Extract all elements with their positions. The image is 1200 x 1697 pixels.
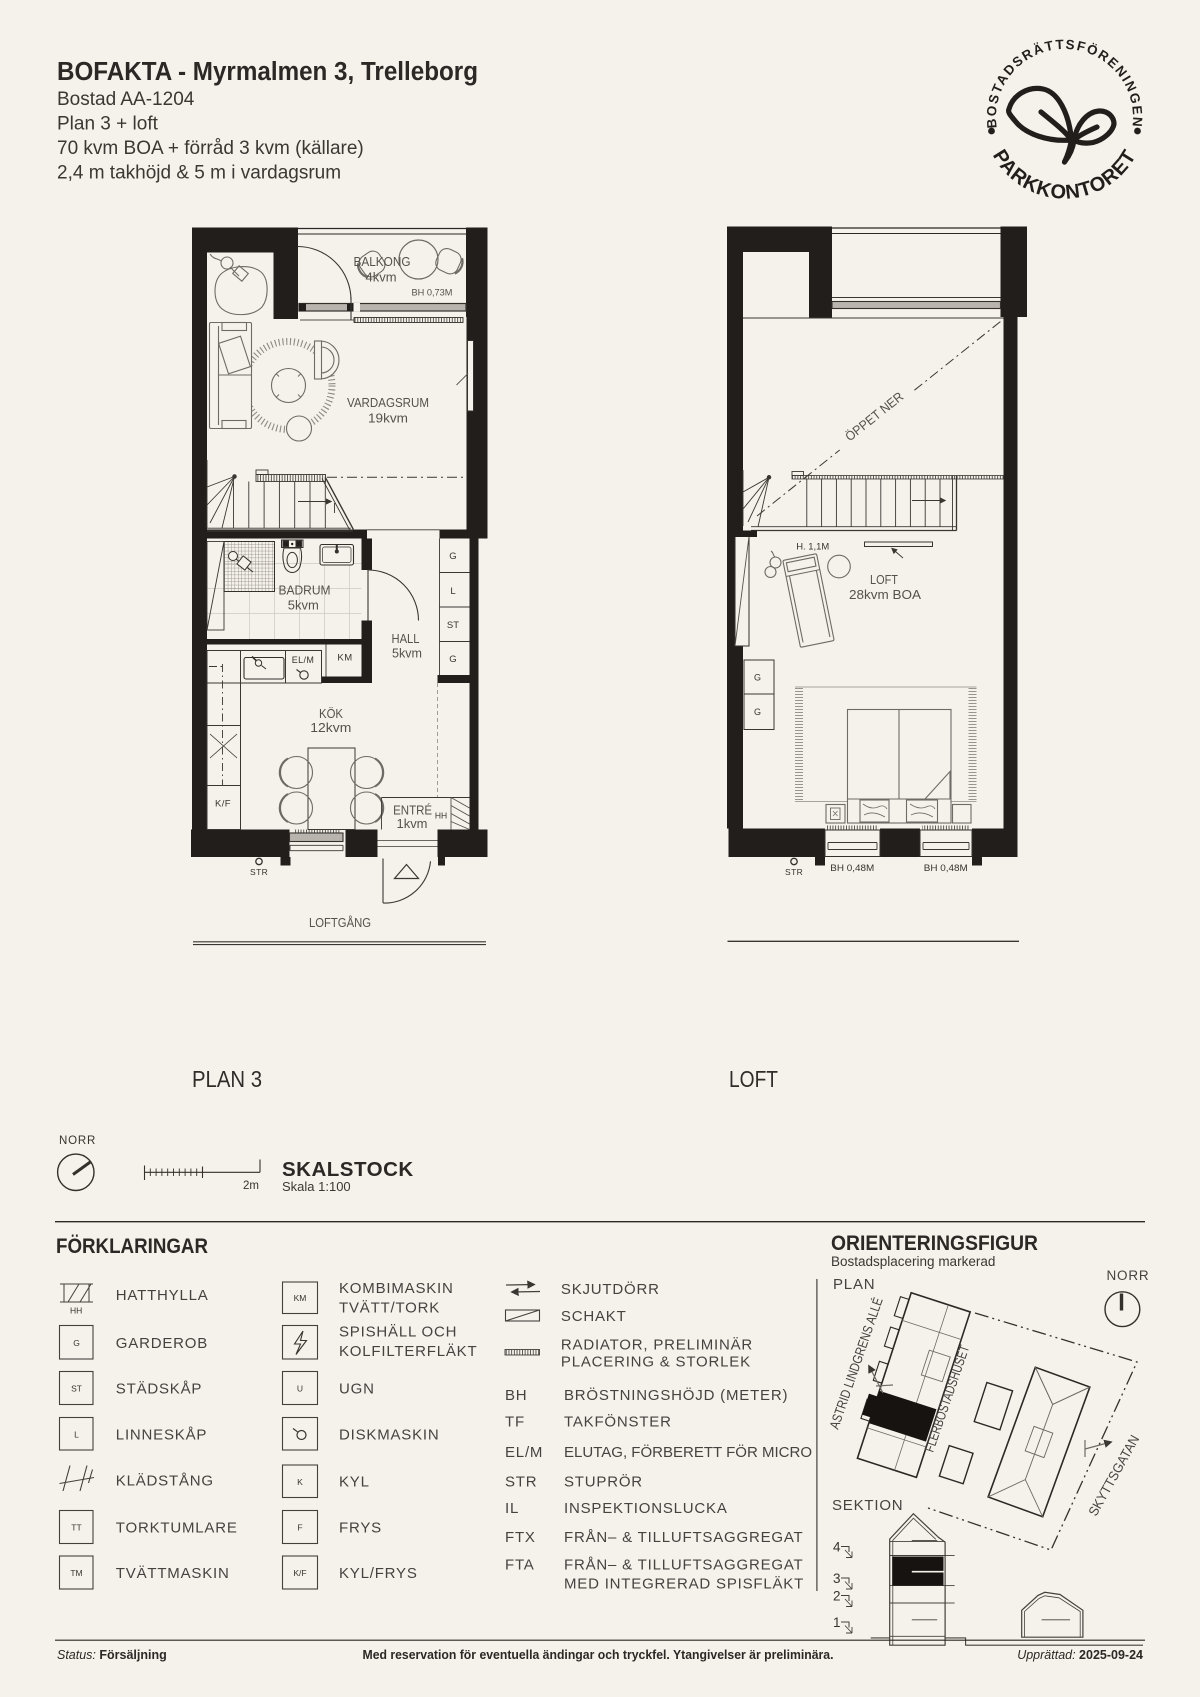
svg-text:KYL: KYL [339,1474,370,1491]
svg-text:TM: TM [70,1568,82,1578]
svg-text:NORR: NORR [1107,1268,1150,1283]
svg-text:BH 0,48M: BH 0,48M [830,863,874,873]
svg-text:SCHAKT: SCHAKT [561,1308,627,1325]
svg-text:2m: 2m [243,1180,259,1192]
svg-text:FRYS: FRYS [339,1520,382,1537]
svg-text:ÖPPET NER: ÖPPET NER [842,389,906,444]
svg-text:4kvm: 4kvm [366,270,397,285]
svg-text:5kvm: 5kvm [392,646,422,661]
svg-text:BH 0,48M: BH 0,48M [924,863,968,873]
svg-text:G: G [754,673,761,683]
svg-text:FRÅN– & TILLUFTSAGGREGAT: FRÅN– & TILLUFTSAGGREGAT [564,1529,804,1546]
svg-text:5kvm: 5kvm [288,598,319,613]
svg-text:FTX: FTX [505,1529,536,1546]
svg-text:TORKTUMLARE: TORKTUMLARE [116,1520,238,1537]
svg-text:70 kvm BOA + förråd 3 kvm (käl: 70 kvm BOA + förråd 3 kvm (källare) [57,138,364,159]
svg-text:SPISHÄLL OCH: SPISHÄLL OCH [339,1324,457,1341]
svg-text:G: G [449,551,456,562]
svg-text:Bostadsplacering markerad: Bostadsplacering markerad [831,1254,995,1269]
svg-text:PLAN: PLAN [833,1276,875,1293]
svg-text:PLAN 3: PLAN 3 [192,1066,262,1092]
svg-text:UGN: UGN [339,1381,375,1398]
svg-text:STUPRÖR: STUPRÖR [564,1473,643,1491]
svg-text:FLERBOSTADSHUSET: FLERBOSTADSHUSET [922,1343,973,1454]
svg-text:EL/M: EL/M [292,655,315,665]
svg-text:PLACERING & STORLEK: PLACERING & STORLEK [561,1354,751,1371]
svg-text:L: L [450,586,455,597]
svg-text:Upprättad: 2025-09-24: Upprättad: 2025-09-24 [1017,1648,1143,1662]
svg-text:IL: IL [505,1500,519,1517]
svg-text:EL/M: EL/M [505,1444,543,1461]
svg-text:ELUTAG, FÖRBERETT FÖR MICRO: ELUTAG, FÖRBERETT FÖR MICRO [564,1443,812,1461]
svg-text:BADRUM: BADRUM [279,583,331,598]
svg-text:LOFT: LOFT [870,572,898,587]
svg-text:TVÄTTMASKIN: TVÄTTMASKIN [116,1565,230,1582]
svg-text:SKALSTOCK: SKALSTOCK [282,1158,414,1181]
svg-text:K/F: K/F [293,1568,306,1578]
svg-text:SEKTION: SEKTION [832,1497,903,1514]
svg-text:KLÄDSTÅNG: KLÄDSTÅNG [116,1473,214,1490]
svg-text:INSPEKTIONSLUCKA: INSPEKTIONSLUCKA [564,1500,728,1517]
svg-text:DISKMASKIN: DISKMASKIN [339,1427,440,1444]
svg-text:19kvm: 19kvm [368,411,408,426]
svg-text:KYL/FRYS: KYL/FRYS [339,1565,418,1582]
svg-text:2,4 m takhöjd & 5 m i vardagsr: 2,4 m takhöjd & 5 m i vardagsrum [57,163,341,184]
svg-text:Med reservation för eventuella: Med reservation för eventuella ändingar … [363,1647,834,1662]
svg-text:STR: STR [250,867,268,877]
svg-text:FTA: FTA [505,1557,535,1574]
svg-text:MED INTEGRERAD SPISFLÄKT: MED INTEGRERAD SPISFLÄKT [564,1576,804,1593]
svg-text:4: 4 [833,1540,841,1555]
svg-text:STÄDSKÅP: STÄDSKÅP [116,1381,202,1398]
svg-text:1kvm: 1kvm [397,817,428,831]
svg-text:Skala 1:100: Skala 1:100 [282,1179,351,1194]
svg-text:LINNESKÅP: LINNESKÅP [116,1427,207,1444]
svg-text:KÖK: KÖK [319,706,343,721]
svg-text:2: 2 [833,1589,841,1604]
svg-text:K/F: K/F [215,799,231,810]
svg-text:KOLFILTERFLÄKT: KOLFILTERFLÄKT [339,1343,477,1360]
svg-text:Bostad AA-1204: Bostad AA-1204 [57,89,195,110]
svg-text:LOFTGÅNG: LOFTGÅNG [309,915,371,930]
svg-text:28kvm BOA: 28kvm BOA [849,587,921,602]
svg-text:SKJUTDÖRR: SKJUTDÖRR [561,1280,660,1298]
svg-text:HALL: HALL [392,631,420,646]
svg-text:RADIATOR, PRELIMINÄR: RADIATOR, PRELIMINÄR [561,1337,753,1354]
svg-text:VARDAGSRUM: VARDAGSRUM [347,395,429,410]
svg-text:1: 1 [833,1615,841,1630]
svg-text:SKYTTSGATAN: SKYTTSGATAN [1086,1432,1143,1518]
svg-text:ORIENTERINGSFIGUR: ORIENTERINGSFIGUR [831,1231,1038,1255]
svg-text:STR: STR [785,867,803,877]
svg-text:GARDEROB: GARDEROB [116,1335,208,1352]
svg-text:KM: KM [294,1293,307,1303]
svg-text:ST: ST [447,620,459,631]
svg-text:U: U [297,1384,303,1394]
svg-text:HH: HH [435,811,447,821]
svg-text:3: 3 [833,1571,841,1586]
svg-text:12kvm: 12kvm [310,720,351,735]
svg-text:BH: BH [505,1387,527,1404]
svg-text:LOFT: LOFT [729,1066,778,1092]
svg-text:TF: TF [505,1414,525,1431]
svg-text:HH: HH [70,1306,82,1316]
svg-text:G: G [754,707,761,717]
svg-text:L: L [74,1430,79,1440]
svg-text:BRÖSTNINGSHÖJD (METER): BRÖSTNINGSHÖJD (METER) [564,1386,788,1404]
svg-text:ENTRÉ: ENTRÉ [393,803,432,818]
svg-text:PARKKONTORET: PARKKONTORET [988,146,1141,204]
svg-text:FÖRKLARINGAR: FÖRKLARINGAR [56,1233,208,1258]
svg-text:BOFAKTA - Myrmalmen 3, Trelleb: BOFAKTA - Myrmalmen 3, Trelleborg [57,58,478,86]
svg-text:G: G [73,1338,80,1348]
svg-text:STR: STR [505,1474,537,1491]
svg-text:FRÅN– & TILLUFTSAGGREGAT: FRÅN– & TILLUFTSAGGREGAT [564,1557,804,1574]
svg-text:TVÄTT/TORK: TVÄTT/TORK [339,1300,440,1317]
svg-text:F: F [297,1523,302,1533]
svg-text:BH 0,73M: BH 0,73M [412,288,453,299]
svg-text:NORR: NORR [59,1135,96,1147]
svg-text:K: K [297,1477,303,1487]
svg-text:Status: Försäljning: Status: Försäljning [57,1648,167,1662]
svg-text:HATTHYLLA: HATTHYLLA [116,1287,209,1304]
svg-text:TAKFÖNSTER: TAKFÖNSTER [564,1413,672,1431]
svg-text:KOMBIMASKIN: KOMBIMASKIN [339,1280,454,1297]
svg-text:BALKONG: BALKONG [354,254,411,269]
svg-text:TT: TT [71,1523,81,1533]
svg-text:H. 1,1M: H. 1,1M [796,542,829,553]
svg-text:KM: KM [337,653,352,664]
svg-text:G: G [449,654,456,665]
svg-text:Plan 3 + loft: Plan 3 + loft [57,114,159,135]
svg-text:ST: ST [71,1384,82,1394]
